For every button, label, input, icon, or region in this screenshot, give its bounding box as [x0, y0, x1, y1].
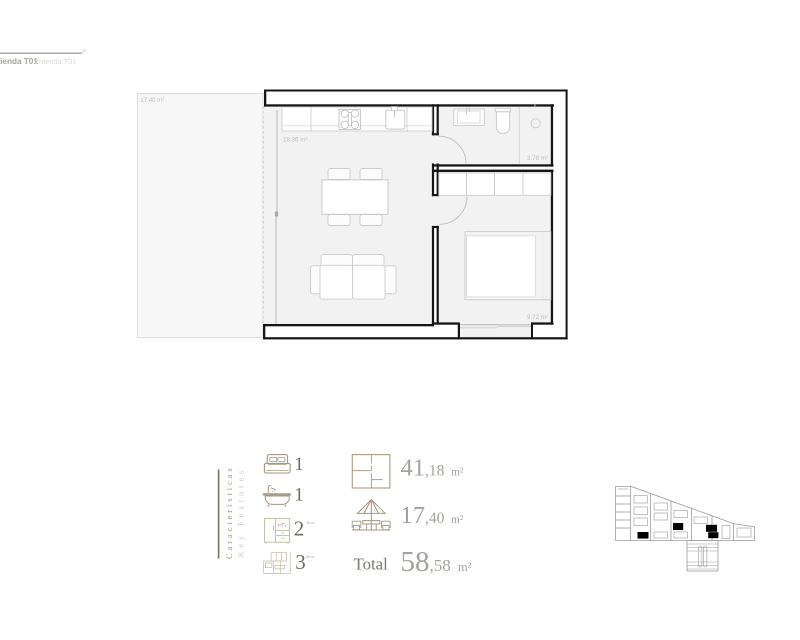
- svg-text:Características: Características: [224, 465, 234, 559]
- svg-text:18.36 m²: 18.36 m²: [283, 137, 307, 144]
- svg-text:Total: Total: [354, 555, 389, 574]
- svg-text:41,18 m²: 41,18 m²: [401, 455, 464, 482]
- svg-text:3.78 m²: 3.78 m²: [527, 155, 548, 162]
- svg-text:Vivienda T01: Vivienda T01: [34, 57, 77, 66]
- svg-text:1: 1: [294, 485, 304, 506]
- svg-text:9.72 m²: 9.72 m²: [527, 314, 548, 321]
- svg-text:Key Features: Key Features: [236, 467, 246, 558]
- svg-text:2: 2: [294, 517, 305, 541]
- svg-text:3: 3: [295, 550, 306, 574]
- svg-text:17.40 m²: 17.40 m²: [141, 98, 165, 104]
- svg-text:58,58 m²: 58,58 m²: [401, 546, 472, 578]
- svg-text:17,40 m²: 17,40 m²: [401, 502, 464, 529]
- svg-text:60 m: 60 m: [306, 555, 314, 559]
- svg-text:30 m: 30 m: [307, 521, 315, 525]
- svg-text:1: 1: [294, 454, 304, 475]
